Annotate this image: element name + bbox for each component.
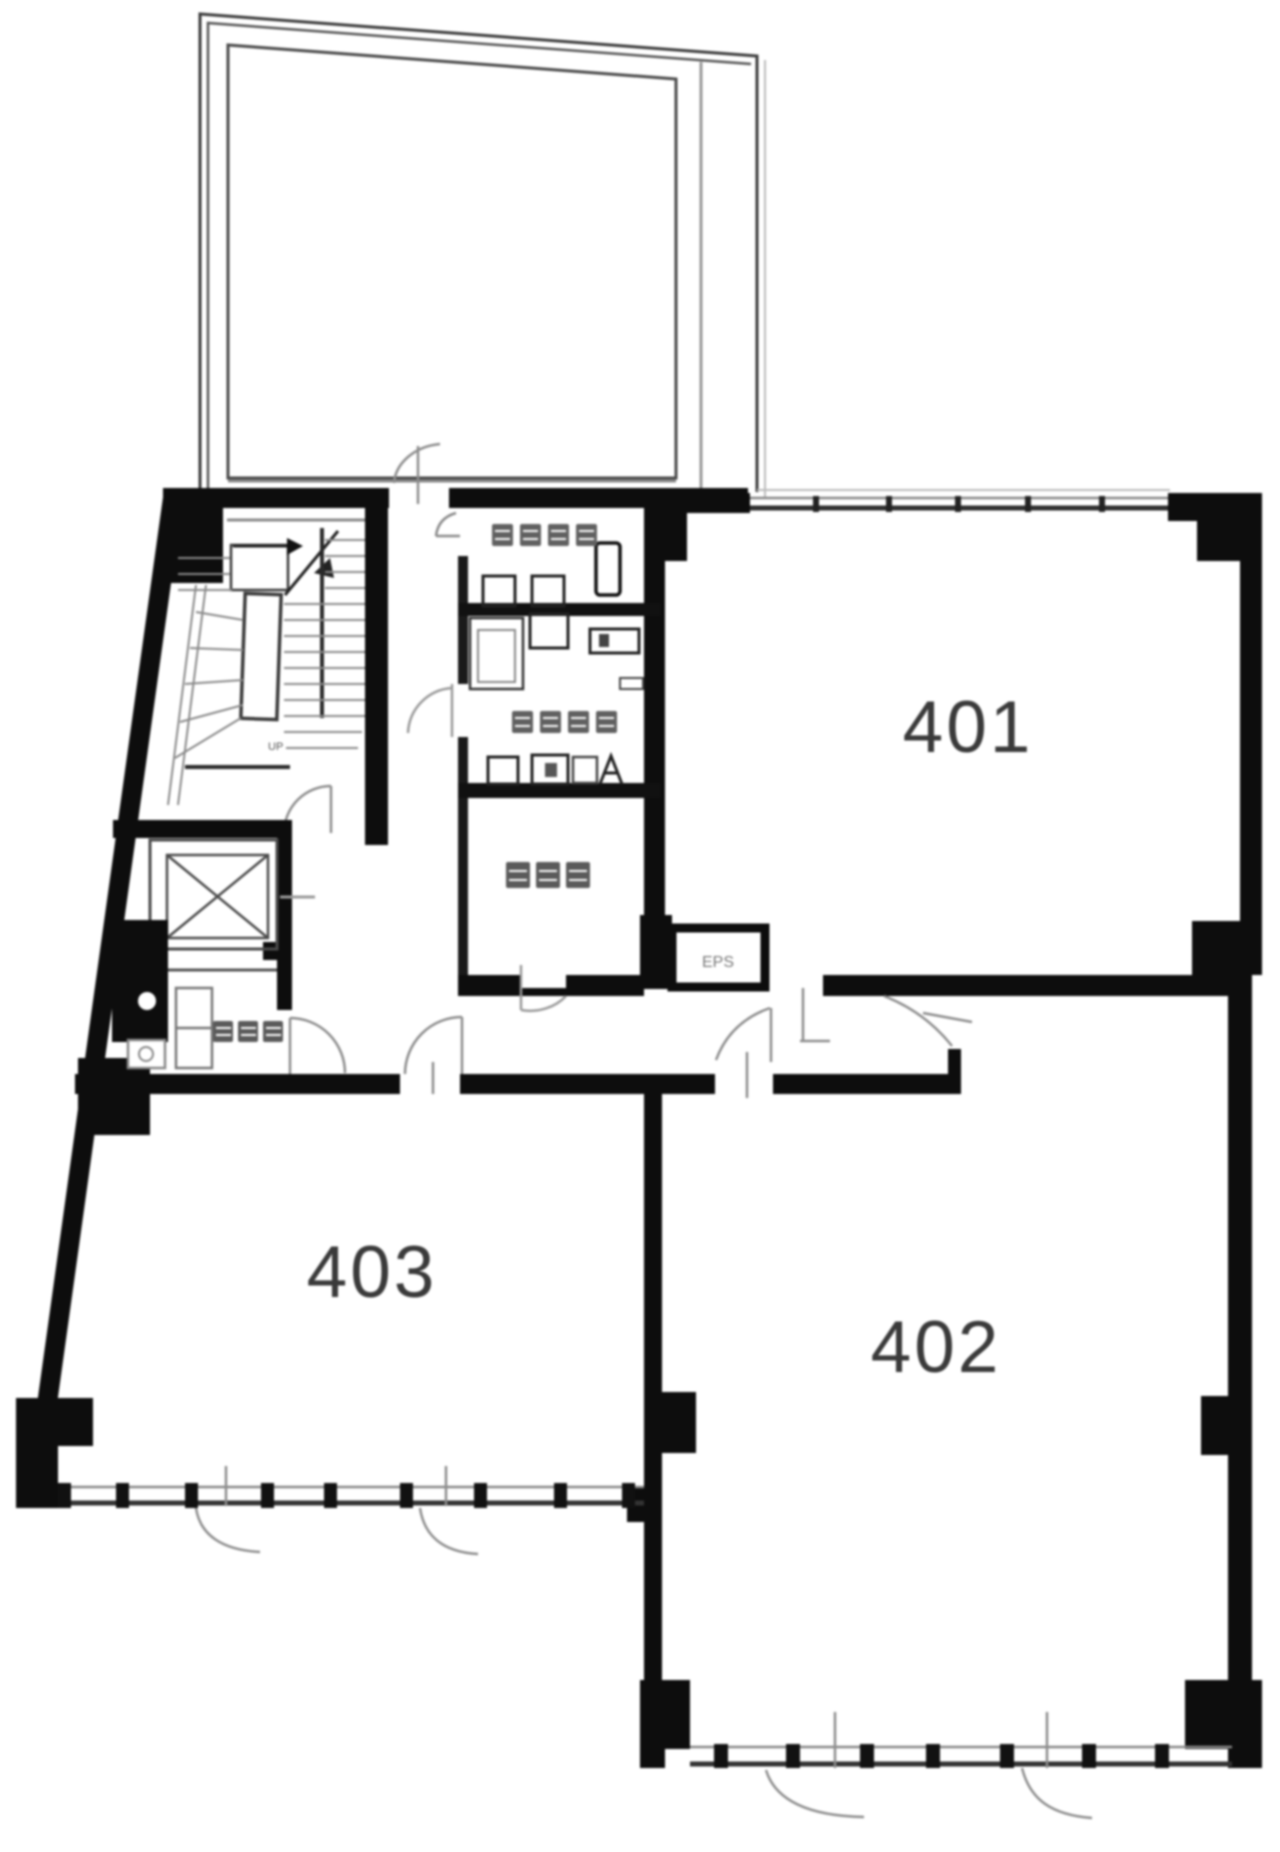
svg-text:UP: UP [268,741,283,753]
svg-text:403: 403 [307,1232,438,1313]
svg-text:401: 401 [903,687,1034,768]
svg-text:402: 402 [871,1307,1002,1388]
svg-text:EPS: EPS [702,954,734,971]
